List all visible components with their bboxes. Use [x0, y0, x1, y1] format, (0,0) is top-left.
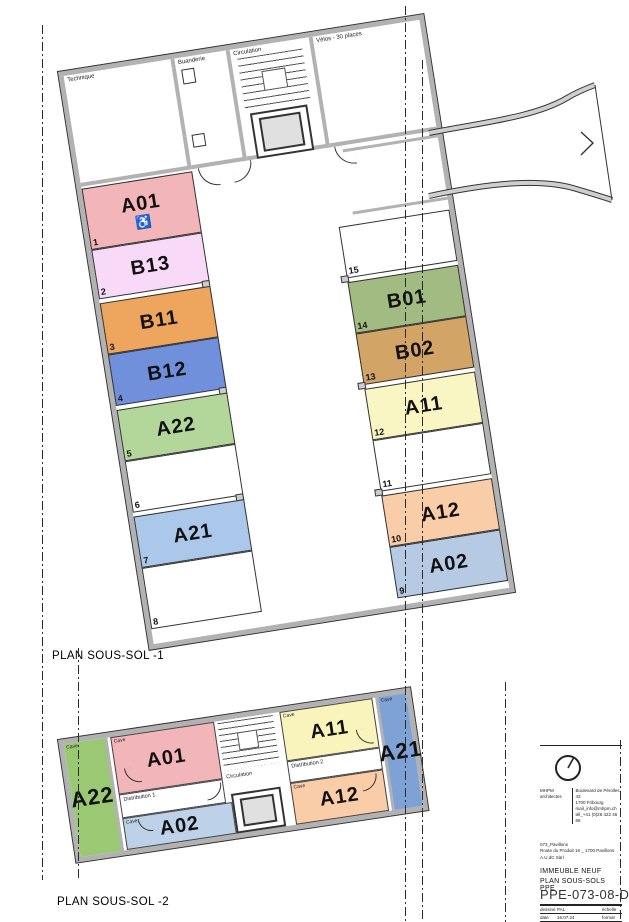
- corridor-label: Distribution 1: [123, 792, 156, 803]
- column-marker: [218, 387, 227, 395]
- firm-address-line: Boulevard de Pérolles 43: [576, 788, 622, 800]
- wheelchair-icon: ♿: [134, 214, 152, 229]
- building-title: IMMEUBLE NEUF: [540, 868, 622, 875]
- axis-line: [422, 60, 423, 922]
- stall-number: 14: [357, 320, 368, 331]
- drawing-sheet: Technique Buanderie Circulation Vélos - …: [0, 0, 629, 922]
- title-block: MHPM architectes Boulevard de Pérolles 4…: [540, 745, 622, 922]
- ramp: [335, 70, 627, 230]
- corridor-label: Distribution 2: [291, 759, 324, 770]
- elevator: [231, 787, 286, 834]
- elevator-car: [259, 112, 306, 152]
- door-swing: [198, 165, 221, 188]
- meta-row: date 16.07.24 format: [540, 913, 622, 921]
- stall-number: 5: [126, 448, 133, 459]
- firm-address-line: tél_+41 (0)26 422 46 65: [576, 812, 622, 824]
- room-label: A21: [377, 737, 423, 765]
- room-technique: Technique: [64, 59, 192, 187]
- axis-line: [78, 648, 79, 878]
- room-buanderie-label: Buanderie: [178, 56, 206, 66]
- axis-line: [620, 740, 621, 922]
- room-label: A01: [145, 745, 187, 771]
- stall-label: A01: [119, 190, 161, 216]
- fixture: [181, 68, 196, 85]
- meta-key: date: [540, 914, 557, 921]
- stall-label: A21: [172, 521, 214, 547]
- door-swing: [231, 160, 254, 183]
- column-marker: [201, 280, 210, 288]
- plan2-caption: PLAN SOUS-SOL -2: [57, 896, 169, 908]
- stall-number: 4: [117, 393, 124, 404]
- elevator-car: [240, 794, 278, 827]
- stall-label: B02: [394, 338, 436, 364]
- project-line: A.U.dC Sàrl: [540, 855, 622, 861]
- meta-table: dessiné PAL échelle date 16.07.24 format…: [540, 904, 622, 922]
- room-label: A12: [318, 784, 360, 810]
- column-marker: [357, 382, 366, 390]
- room-label: A22: [69, 783, 115, 811]
- stair-landing: [237, 730, 259, 751]
- fixture: [191, 133, 206, 148]
- meta-row: dessiné PAL échelle: [540, 904, 622, 913]
- axis-line: [505, 682, 506, 922]
- room-velos-label: Vélos - 30 places: [316, 31, 362, 44]
- stall-number: 8: [152, 616, 159, 627]
- stall-label: B12: [146, 359, 188, 385]
- document-number: PPE-073-08-D: [540, 887, 622, 902]
- meta-value: 16.07.24: [557, 914, 602, 921]
- stall-number: 7: [143, 555, 150, 566]
- room-label: A02: [158, 813, 200, 839]
- stall-number: 1: [92, 237, 99, 248]
- project-info: 073_Pavillons Route du Produit 16 _ 1700…: [540, 842, 622, 861]
- door-swing: [205, 782, 223, 800]
- stall-number: 12: [374, 426, 385, 437]
- circulation-label: Circulation: [226, 771, 253, 781]
- room-label: A11: [309, 717, 350, 742]
- stall-number: 15: [348, 264, 359, 275]
- stall-number: 11: [382, 478, 393, 489]
- axis-line: [42, 25, 43, 880]
- plan1-caption: PLAN SOUS-SOL -1: [52, 650, 164, 662]
- ramp-direction-chevron: [581, 132, 593, 155]
- stall-number: 10: [390, 533, 401, 544]
- stall-label: A12: [419, 500, 461, 526]
- meta-key: dessiné: [540, 906, 557, 913]
- firm-name: MHPM architectes: [540, 788, 572, 824]
- project-line: Route du Produit 16 _ 1700 Pavillons: [540, 848, 622, 854]
- stall-label: A22: [155, 414, 197, 440]
- stall-number: 2: [100, 286, 107, 297]
- stall-number: 6: [134, 500, 141, 511]
- axis-line: [405, 6, 406, 922]
- stall-label: A11: [403, 393, 444, 419]
- column-marker: [374, 488, 383, 496]
- stall-label: B11: [138, 307, 179, 333]
- elevator: [250, 104, 314, 159]
- column-marker: [235, 493, 244, 501]
- meta-value: PAL: [557, 906, 602, 913]
- stair-landing: [261, 67, 288, 91]
- room-technique-label: Technique: [67, 73, 95, 83]
- firm-address: Boulevard de Pérolles 43 1700 Fribourg m…: [572, 788, 622, 824]
- meta-key: échelle: [602, 906, 622, 913]
- meta-key: format: [602, 914, 622, 921]
- stall-number: 3: [109, 342, 116, 353]
- column-marker: [340, 275, 349, 283]
- building-sous-sol-2: Cave A22 Cave A01 Distribution 1 Cave A0…: [58, 687, 428, 862]
- stall-number: 13: [365, 371, 376, 382]
- firm-logo-icon: [554, 754, 582, 782]
- stall-label: A02: [428, 551, 470, 577]
- stall-label: B13: [129, 253, 171, 279]
